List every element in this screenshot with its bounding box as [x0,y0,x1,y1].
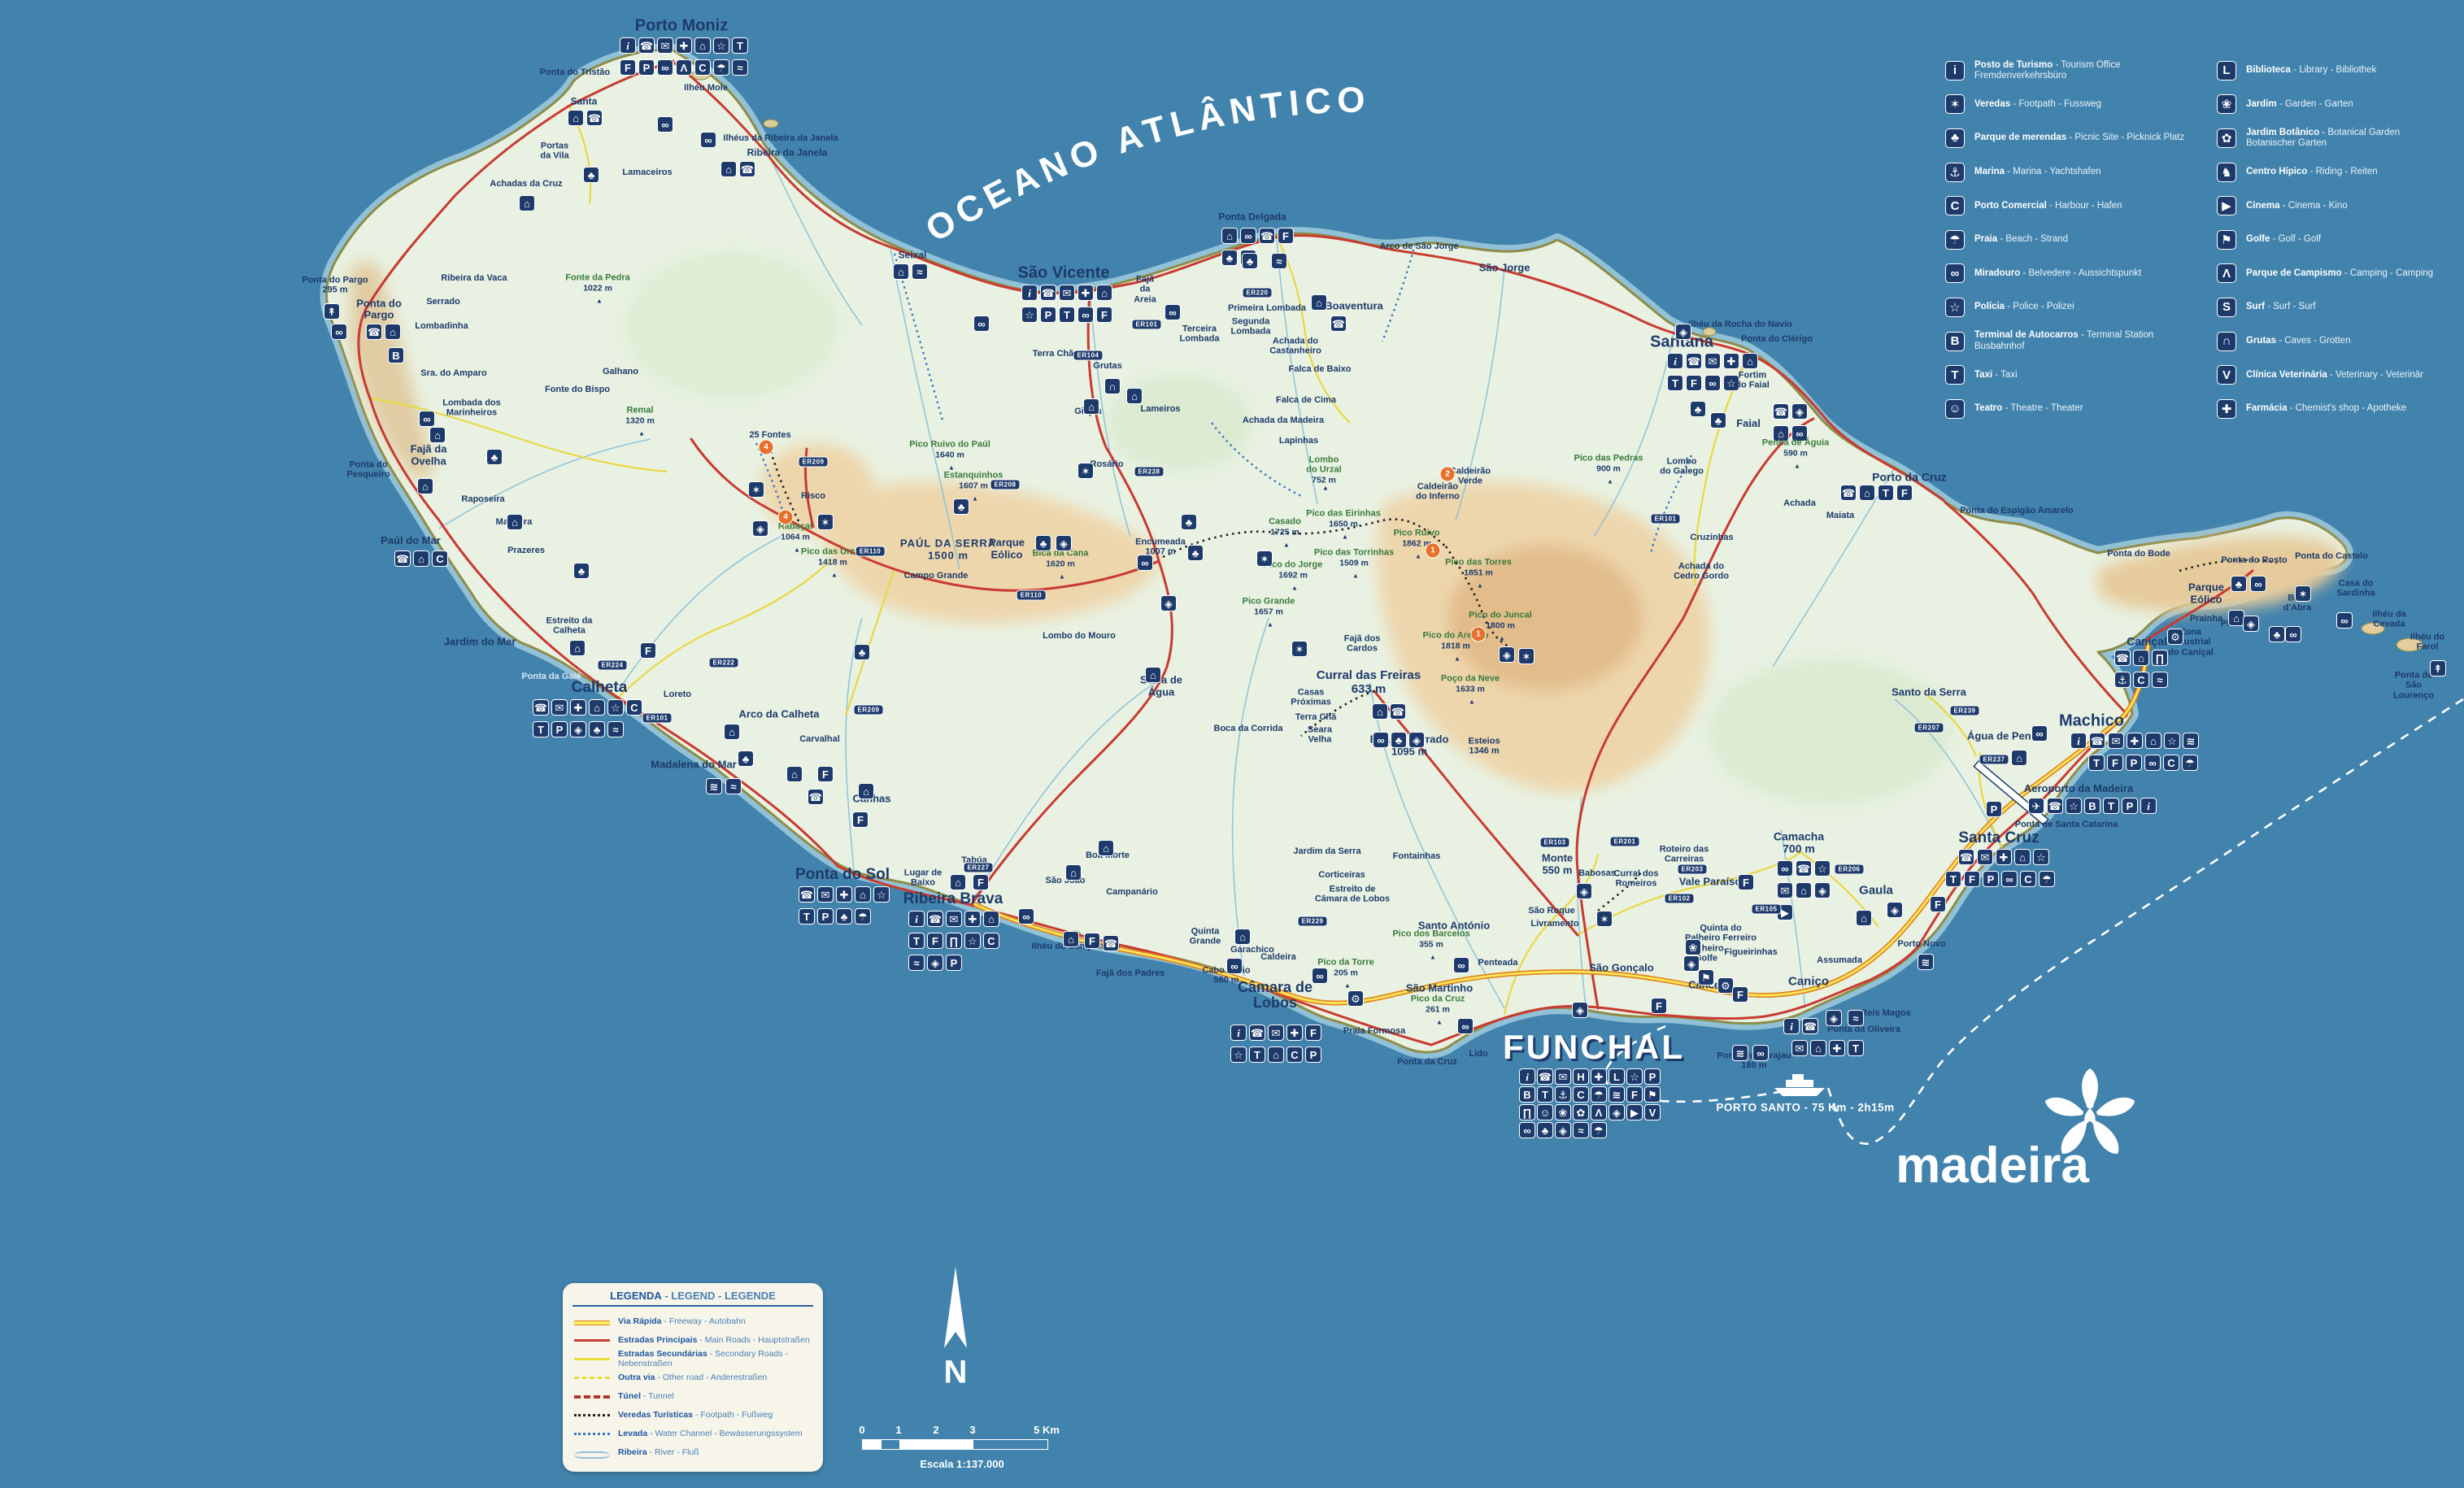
parking-icon: P [1983,871,1999,887]
peak-elevation: 1022 m [583,283,612,293]
peak-name: Penha de Águia [1762,437,1830,447]
hotel-icon: ◈ [1887,902,1903,918]
peak-name: Pico Ruivo [1394,528,1440,537]
telephone-icon: ☎ [2089,733,2105,749]
legend-item-label: Golfe - Golf - Golf [2246,234,2321,245]
theatre-icon: ☺ [1945,399,1965,419]
picnic-site-icon: ♣ [1710,412,1726,429]
place-label: Estreito de Câmara de Lobos [1315,885,1390,905]
madeira-tourist-map: OCEANO ATLÂNTICO Porto Monizi☎✉✚⌂☆TFP∞ΛC… [0,0,2464,1488]
peak-name: Remal [626,405,653,415]
place-label: Porto Novo [1897,939,1945,949]
peak-elevation: 1657 m [1254,607,1283,616]
peak-name: Pico Grande [1243,596,1295,606]
lodging-icon: ⌂ [2133,650,2149,666]
road-number-badge: ER105 [1752,904,1782,915]
place-label: Ponta do Bode [2107,549,2170,559]
picnic-site-icon: ♣ [2231,576,2247,592]
trail-marker: 4 [759,440,774,455]
legend-title: LEGENDA - LEGEND - LEGENDE [572,1290,813,1307]
peak-name: Fonte da Pedra [565,272,629,282]
legend-item: ☺Teatro - Theatre - Theater [1945,392,2214,426]
place-label: Achada do Castanheiro [1269,337,1321,357]
place-label: Ilhéu da Rocha do Navio [1688,320,1792,329]
road-legend-item: Ribeira - River - Fluß [574,1444,823,1461]
legend-item-label: Cinema - Cinema - Kino [2246,201,2348,211]
beach-icon: ☂ [1945,230,1965,250]
picnic-site-icon: ♣ [1187,545,1204,561]
picnic-site-icon: ♣ [1537,1122,1553,1138]
town-label: Seixal [899,250,927,261]
camping-icon: Λ [2217,263,2236,283]
harbour-icon: C [2163,755,2179,771]
scale-segment [973,1440,1047,1449]
beach-icon: ☂ [855,908,871,925]
place-label: Terra Chã [1295,712,1337,722]
police-icon: ☆ [713,37,729,54]
hotel-icon: ◈ [752,520,768,537]
picnic-site-icon: ♣ [1391,732,1407,748]
pharmacy-icon: ✚ [964,911,981,927]
taxi-icon: T [1059,307,1075,323]
peak-name: Pico Ruivo do Paúl [909,439,990,449]
footpath-icon: ✶ [817,514,834,530]
picnic-site-icon: ♣ [1242,253,1258,269]
legend-item: TTaxi - Taxi [1945,358,2214,392]
place-label: Ponta do Clérigo [1741,334,1813,344]
road-legend-box: LEGENDA - LEGEND - LEGENDE Via Rápida - … [563,1283,823,1472]
lodging-icon: ⌂ [2145,733,2161,749]
place-label: Prazeres [507,546,545,555]
hotel-icon: ◈ [1826,1010,1842,1026]
place-label: Madalena do Mar [651,759,736,772]
legend-item-label: Surf - Surf - Surf [2246,302,2316,312]
legend-item: LBiblioteca - Library - Bibliothek [2217,54,2464,88]
scale-bar [862,1439,1048,1450]
legend-item: BTerminal de Autocarros - Terminal Stati… [1945,324,2214,359]
hotel-icon: ◈ [1555,1122,1571,1138]
peak-triangle-icon: ▲ [1469,698,1475,706]
pharmacy-icon: ✚ [2217,399,2236,419]
hotel-icon: ◈ [1160,595,1177,611]
road-number-badge: ER227 [964,863,994,873]
peak-triangle-icon: ▲ [1344,982,1351,990]
place-label: Cruzinhas [1690,533,1733,542]
telephone-icon: ☎ [808,789,824,805]
road-number-badge: ER101 [1132,320,1162,330]
lodging-icon: ⌂ [1234,929,1251,945]
miradouro-icon: ∞ [1226,958,1243,974]
fuel-station-icon: F [817,766,834,782]
town-label: Machico [2059,713,2124,730]
town-label: Ponta do Pargo [356,298,402,320]
telephone-icon: ☎ [366,324,382,340]
place-label: Vale Paraíso [1679,877,1742,889]
place-label: Curral dos Romeiros [1613,869,1658,890]
peak-name: Lombo do Urzal [1306,455,1341,474]
garden-icon: ❀ [1685,939,1701,955]
fuel-station-icon: F [973,874,989,890]
pharmacy-icon: ✚ [1996,849,2012,865]
legend-item: ❀Jardim - Garden - Garten [2217,88,2464,122]
place-label: Fajã da Areia [1134,275,1156,305]
beach-icon: ☂ [2039,871,2055,887]
miradouro-icon: ∞ [1312,968,1328,984]
place-label: Roteiro das Carreiras [1660,845,1709,865]
peak-elevation: 1607 m [959,481,988,490]
lodging-icon: ⌂ [507,514,523,530]
lodging-icon: ⌂ [589,699,605,716]
place-label: Terra Chã [1033,349,1074,359]
pharmacy-icon: ✚ [1591,1068,1607,1085]
lodging-icon: ⌂ [724,724,740,740]
marina-icon: ⚓ [1945,163,1965,182]
place-label: Risco [801,491,825,501]
place-label: Casa do Sardinha [2336,579,2375,599]
hotel-icon: ◈ [1499,646,1515,663]
pharmacy-icon: ✚ [570,699,586,716]
peak-label: Pico da Cruz 261 m [1411,994,1465,1014]
road-legend-item: Via Rápida - Freeway - Autobahn [574,1313,823,1330]
footpath-icon: ✶ [748,481,764,498]
boat-trips-icon: ≋ [1918,954,1934,970]
brand-wordmark: madeira [1870,1137,2114,1194]
via-line-sample [574,1318,610,1326]
parking-icon: P [1986,801,2002,817]
place-label: Livramento [1530,919,1578,929]
road-number-badge: ER206 [1835,864,1865,875]
taxi-icon: T [732,37,748,54]
road-number-badge: ER104 [1073,350,1104,361]
road-number-badge: ER101 [1651,514,1681,524]
place-label: 25 Fontes [749,430,790,440]
peak-elevation: 1692 m [1278,570,1308,580]
lodging-icon: ⌂ [417,478,433,494]
footpath-icon: ✶ [1518,648,1535,664]
trail-marker: 4 [778,510,794,525]
miradouro-icon: ∞ [1704,375,1721,391]
peak-label: Pico das Torres 1851 m [1445,557,1512,577]
place-label: Caniço [1788,976,1829,990]
road-number-badge: ER209 [854,705,884,716]
place-label: Quinta Grande [1190,927,1221,947]
north-label: N [944,1355,968,1391]
place-label: Garachico [1230,945,1274,955]
post-office-icon: ✉ [1059,285,1075,301]
telephone-icon: ☎ [1686,353,1702,369]
place-label: Rosário [1091,459,1124,469]
taxi-icon: T [1537,1086,1553,1103]
north-arrow-icon [939,1267,972,1356]
road-number-badge: ER102 [1665,894,1695,904]
taxi-icon: T [1945,365,1965,385]
legend-item-label: Clínica Veterinária - Veterinary - Veter… [2246,370,2423,381]
peak-triangle-icon: ▲ [1794,463,1800,470]
miradouro-icon: ∞ [331,324,347,340]
library-icon: L [1609,1068,1625,1085]
taxi-icon: T [1878,485,1894,501]
road-number-badge: ER229 [1298,916,1328,927]
telephone-icon: ☎ [1840,485,1857,501]
peak-label: Pico das Pedras 900 m [1574,453,1643,473]
legend-item: ✿Jardim Botânico - Botanical Garden Bota… [2217,121,2464,155]
museum-icon: ∏ [1519,1104,1535,1120]
garden-icon: ❀ [1555,1104,1571,1120]
police-icon: ☆ [1230,1046,1247,1063]
place-label: Fonte do Bispo [545,385,610,394]
legend-item-label: Veredas - Footpath - Fussweg [1974,99,2101,110]
miradouro-icon: ∞ [2285,626,2301,642]
scale-segment [899,1440,973,1449]
place-label: Santo da Serra [1892,687,1966,699]
telephone-icon: ☎ [1773,403,1789,420]
lodging-icon: ⌂ [1810,1040,1826,1056]
beach-icon: ☂ [2182,755,2198,771]
lodging-icon: ⌂ [1372,703,1388,720]
peak-triangle-icon: ▲ [1454,655,1461,663]
legend-item: ΛParque de Campismo - Camping - Camping [2217,257,2464,291]
lighthouse-icon: ↟ [2430,660,2446,677]
tourist-info-icon: i [1519,1068,1535,1085]
marina-icon: ⚓ [2114,672,2131,688]
lodging-icon: ⌂ [519,195,535,211]
fuel-station-icon: F [1964,871,1980,887]
sec-line-sample [574,1355,610,1364]
peak-elevation: 1851 m [1464,568,1493,577]
place-label: Fajã dos Padres [1096,968,1165,978]
boat-trips-icon: ≋ [1609,1086,1625,1103]
telephone-icon: ☎ [1040,285,1056,301]
post-office-icon: ✉ [1704,353,1721,369]
legend-item: iPosto de Turismo - Tourism Office Fremd… [1945,54,2214,88]
footpath-icon: ✶ [1596,911,1613,927]
miradouro-icon: ∞ [657,116,673,133]
police-icon: ☆ [1021,307,1038,323]
swimming-icon: ≈ [1573,1122,1589,1138]
place-label: Praia Formosa [1343,1026,1405,1036]
fuel-station-icon: F [1686,375,1702,391]
pharmacy-icon: ✚ [676,37,692,54]
place-label: Monte 550 m [1542,852,1573,876]
place-label: Lameiros [1141,404,1181,414]
lodging-icon: ⌂ [568,110,584,126]
peak-label: Casado 1725 m [1269,516,1301,537]
lodging-icon: ⌂ [1796,882,1812,898]
parking-icon: P [1040,307,1056,323]
fuel-station-icon: F [1738,874,1754,890]
place-label: Lombo do Mouro [1043,631,1116,641]
place-label: Água de Pena [1967,731,2037,743]
swimming-icon: ≈ [732,59,748,76]
peak-label: Poço da Neve 1633 m [1441,673,1500,694]
trail-marker: 1 [1471,627,1487,642]
place-label: Esteios 1346 m [1468,737,1500,757]
pharmacy-icon: ✚ [1286,1025,1303,1041]
legend-item: SSurf - Surf - Surf [2217,290,2464,324]
place-label: Fajã dos Cardos [1344,634,1381,655]
footpath-icon: ✶ [2295,585,2311,602]
lodging-icon: ⌂ [413,550,429,567]
peak-name: Pico da Torre [1317,957,1373,967]
telephone-icon: ☎ [1390,703,1406,720]
place-label: Assumada [1817,955,1862,965]
lodging-icon: ⌂ [1126,388,1143,404]
factory-icon: ⚙ [1717,977,1734,994]
lodging-icon: ⌂ [1063,931,1079,947]
road-legend-label: Estradas Secundárias - Secondary Roads -… [618,1350,823,1368]
caves-icon: ∩ [2217,332,2236,351]
miradouro-icon: ∞ [1752,1045,1769,1061]
place-label: Ilhéus da Ribeira da Janela [723,133,838,143]
telephone-icon: ☎ [394,550,411,567]
pharmacy-icon: ✚ [836,886,852,903]
lodging-icon: ⌂ [1311,294,1327,311]
town-label: Câmara de Lobos [1238,980,1313,1011]
town-label: Ponta do Sol [795,867,890,883]
swimming-icon: ≈ [2152,672,2168,688]
camping-icon: Λ [1591,1104,1607,1120]
parking-icon: P [817,908,834,925]
legend-item: ∞Miradouro - Belvedere - Aussichtspunkt [1945,257,2214,291]
scale-segment [882,1440,900,1449]
picnic-site-icon: ♣ [2269,626,2285,642]
peak-triangle-icon: ▲ [794,546,800,554]
tourist-info-icon: i [1230,1025,1247,1041]
miradouro-icon: ∞ [2001,871,2018,887]
picnic-site-icon: ♣ [573,563,590,579]
taxi-icon: T [1945,871,1961,887]
trail-marker: 2 [1440,467,1456,482]
place-label: Gaula [1859,885,1893,898]
picnic-site-icon: ♣ [1181,514,1197,530]
fuel-station-icon: F [1278,228,1294,244]
post-office-icon: ✉ [1977,849,1993,865]
lodging-icon: ⌂ [1856,910,1872,926]
peak-triangle-icon: ▲ [1322,485,1329,492]
place-label: Serrado [426,297,460,307]
fuel-station-icon: F [1626,1086,1643,1103]
place-label: Ilhéu Mole [684,83,728,93]
fuel-station-icon: F [1732,986,1748,1003]
peak-elevation: 1725 m [1270,527,1299,537]
taxi-icon: T [1667,375,1683,391]
parking-icon: P [1644,1068,1661,1085]
road-number-badge: ER239 [1950,706,1980,716]
lodging-icon: ⌂ [1268,1046,1284,1063]
post-office-icon: ✉ [817,886,834,903]
place-label: Grutas [1093,361,1121,371]
funchal-city-label: FUNCHAL [1503,1028,1685,1067]
scale-tick-label: 1 [895,1424,901,1436]
lodging-icon: ⌂ [1096,285,1112,301]
tourist-info-icon: i [1667,353,1683,369]
lodging-icon: ⌂ [2011,750,2027,766]
town-label: Camacha 700 m [1774,830,1824,854]
ferry-route-label: PORTO SANTO - 75 Km - 2h15m [1716,1102,1894,1114]
golf-icon: ⚑ [1698,969,1714,985]
telephone-icon: ☎ [638,37,655,54]
lodging-icon: ⌂ [385,324,401,340]
town-label: Ribeira Brava [903,891,1003,907]
telephone-icon: ☎ [2047,798,2063,814]
place-label: Caldeirão do Inferno [1416,482,1460,503]
scale-segment [863,1440,882,1449]
bus-terminal-icon: B [2084,798,2100,814]
peak-label: Pico dos Barcelos 355 m [1392,929,1469,949]
legend-item: ▶Cinema - Cinema - Kino [2217,189,2464,223]
peak-label: Pico Ruivo do Paúl 1640 m [909,439,990,459]
fuel-station-icon: F [927,933,943,949]
scale-tick-label: 2 [933,1424,938,1436]
lodging-icon: ⌂ [569,640,586,656]
tourist-info-icon: i [908,911,925,927]
bus-terminal-icon: B [388,347,404,363]
scale-caption: Escala 1:137.000 [920,1458,1003,1470]
town-label: São Vicente [1017,265,1109,282]
police-icon: ☆ [2066,798,2082,814]
tun-line-sample [574,1393,610,1401]
town-label: Ponta da Oliveira [1827,1025,1900,1035]
miradouro-icon: ∞ [1137,555,1153,571]
peak-elevation: 205 m [1334,968,1358,977]
place-label: Sra. do Amparo [420,368,487,378]
bus-terminal-icon: B [1519,1086,1535,1103]
fuel-station-icon: F [1084,933,1100,949]
swimming-icon: ≈ [725,778,742,794]
miradouro-icon: ∞ [1453,957,1469,973]
town-label: Calheta [572,680,628,696]
peak-label: Remal 1320 m [625,405,655,425]
veterinary-icon: V [2217,365,2236,385]
road-legend-label: Outra via - Other road - Anderestraßen [618,1373,767,1382]
place-label: Galhano [603,367,638,376]
picnic-site-icon: ♣ [738,751,754,767]
legend-column-2: LBiblioteca - Library - Bibliothek❀Jardi… [2217,54,2464,426]
lodging-icon: ⌂ [2228,610,2244,626]
place-label: Lugar de Baixo [904,868,942,889]
peak-triangle-icon: ▲ [596,298,603,305]
place-label: Prainha [2190,614,2222,624]
place-label: Ponta do Rosto [2221,555,2287,565]
hotel-icon: ◈ [1675,324,1691,340]
miradouro-icon: ∞ [2031,725,2048,742]
tourist-info-icon: i [620,37,636,54]
lodging-icon: ⌂ [786,766,803,782]
picnic-site-icon: ♣ [1945,128,1965,148]
hotel-icon: ◈ [927,955,943,971]
place-label: Maiata [1826,511,1854,520]
place-label: São Jorge [1479,263,1530,275]
lighthouse-icon: ↟ [324,303,340,320]
town-label: Ponta Delgada [1218,212,1286,223]
peak-name: Pico das Torres [1445,557,1512,567]
miradouro-icon: ∞ [2144,755,2161,771]
telephone-icon: ☎ [586,110,603,126]
miradouro-icon: ∞ [657,59,673,76]
peak-elevation: 1620 m [1046,559,1075,568]
miradouro-icon: ∞ [1165,304,1181,320]
place-label: Portas da Vila [540,141,568,162]
taxi-icon: T [908,933,925,949]
legend-item-label: Posto de Turismo - Tourism Office Fremde… [1974,60,2121,81]
road-number-badge: ER222 [709,658,739,668]
telephone-icon: ☎ [739,161,755,177]
legend-item: ⚑Golfe - Golf - Golf [2217,223,2464,257]
town-label: Aeroporto da Madeira [2024,783,2133,794]
peak-label: Penha de Águia 590 m [1762,437,1830,458]
peak-triangle-icon: ▲ [1415,553,1421,560]
place-label: Fajã da Ovelha [411,443,447,467]
